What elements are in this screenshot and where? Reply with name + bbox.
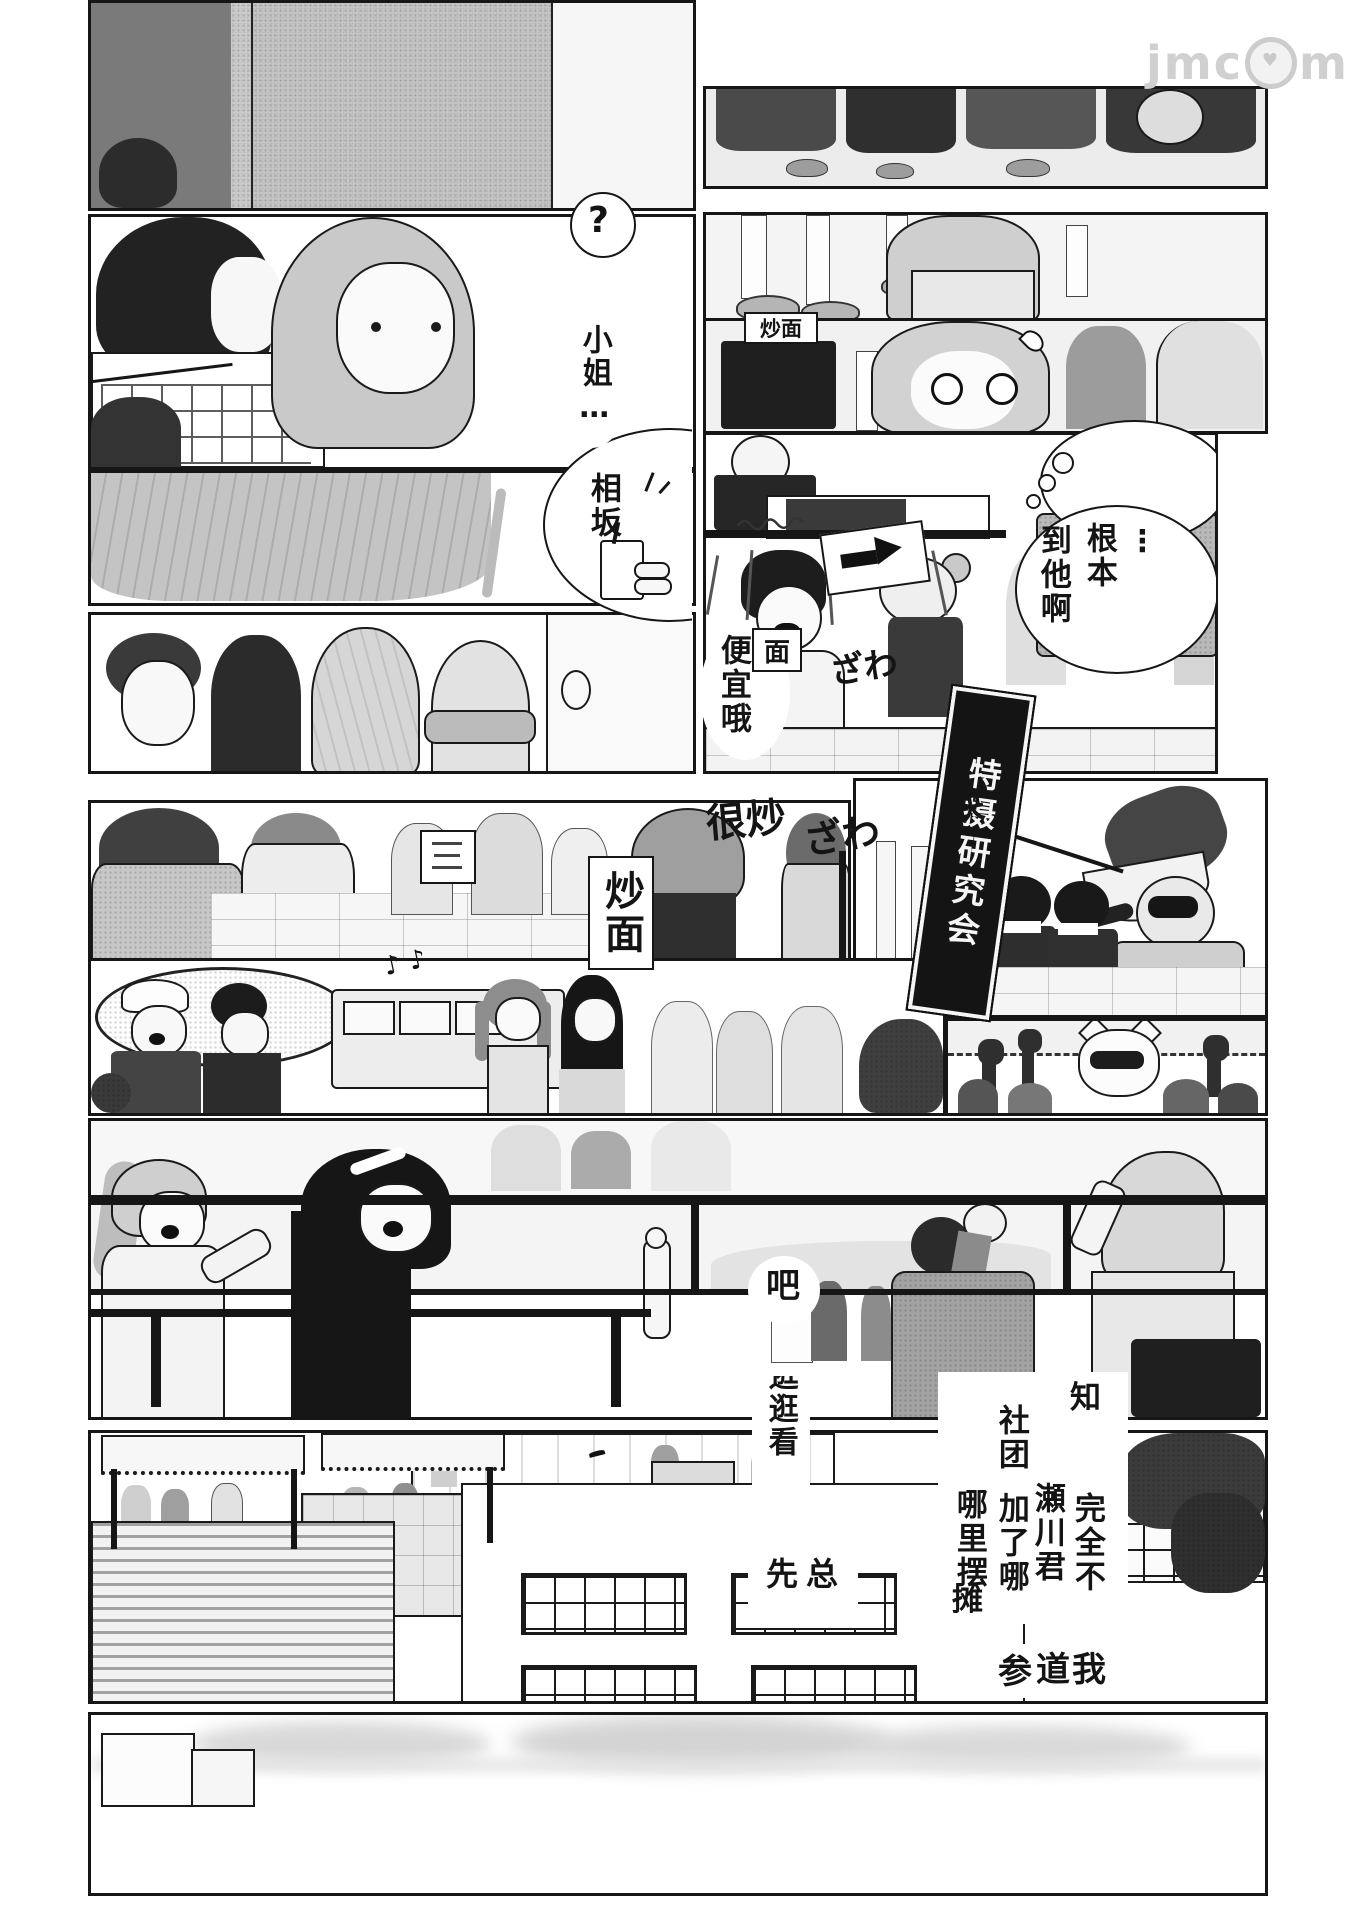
demo-leg-1: [876, 841, 896, 963]
tent-awning-1: [101, 1435, 305, 1475]
panel-cap-guys: [88, 958, 946, 1116]
girl-eye-right: [431, 322, 441, 332]
window-cluster-1: [521, 1573, 687, 1635]
shocked-eye-left: [931, 373, 963, 405]
sfx-henchao: 很炒: [704, 797, 787, 846]
sfx-zawa-1: ざわ: [828, 645, 900, 690]
friend-face: [221, 1011, 269, 1057]
figure-dark-bottom: [91, 397, 181, 467]
shoe-3: [1006, 159, 1050, 177]
yakisoba-stall-sign: 炒面: [588, 856, 654, 970]
arrow-head-icon: [874, 533, 904, 564]
girl1-face: [121, 660, 195, 746]
panel-girls-row: [88, 612, 696, 774]
tent1-post-left: [111, 1469, 117, 1549]
window-sill: [91, 1289, 1265, 1295]
c4-crowd-1: [651, 1001, 713, 1115]
panel-crowd-backs: [703, 86, 1268, 189]
window-cluster-4: [751, 1665, 917, 1704]
shoe-1: [786, 159, 828, 177]
zong-text: 总: [806, 1558, 838, 1592]
shetuan-text: 社团: [994, 1404, 1027, 1472]
small-building-1: [101, 1733, 195, 1807]
yakisoba-sign-small-text: 炒面: [760, 313, 802, 343]
thought-circle-1: [1052, 452, 1074, 474]
r3-bgfig-1: [491, 1125, 561, 1191]
r3-bgfig-2: [571, 1131, 631, 1189]
figure-head-dark: [99, 138, 177, 208]
crowd-figure-1: [716, 89, 836, 151]
thought-circle-3: [1026, 494, 1041, 509]
bush-right: [859, 1019, 943, 1113]
twin-girl-face: [495, 997, 541, 1041]
friend-body: [203, 1053, 281, 1113]
aisaka-text: 相坂: [586, 472, 619, 540]
robot-visor: [1148, 896, 1198, 918]
speedline-1: [706, 555, 719, 615]
small-building-2: [191, 1749, 255, 1807]
shocked-eye-right: [986, 373, 1018, 405]
wanquanbu-text: 完全不: [1070, 1492, 1103, 1594]
crowd-figure-2: [846, 89, 956, 153]
genben-text: 根本: [1082, 522, 1115, 590]
crowd-figure-3: [966, 89, 1096, 149]
tan-text: 摊: [952, 1584, 983, 1617]
bg-figure-1: [1066, 326, 1146, 429]
panel-feet-pavement: [703, 212, 1268, 322]
sfx-kuai: 快: [947, 787, 987, 828]
shoe-2: [876, 163, 914, 179]
dao-text: 道: [1036, 1652, 1070, 1688]
figure-white-shirt: [551, 3, 695, 208]
black-girl-body: [559, 1069, 625, 1113]
watermark-text-pre: jmc: [1146, 36, 1243, 90]
xian-text: 先: [766, 1558, 798, 1592]
r3-bgfig-3: [651, 1121, 731, 1191]
bush-left: [91, 1073, 131, 1113]
crowd-light-head: [1136, 89, 1204, 145]
black-girl-face: [573, 997, 617, 1043]
mascot-crowd-1: [958, 1079, 998, 1113]
guang-text: 逛逛看: [764, 1376, 796, 1459]
leg-4: [1066, 225, 1088, 297]
guang-bubble: 逛逛看: [752, 1376, 810, 1496]
bench-leg-1: [151, 1317, 161, 1407]
panel-sky: [88, 1712, 1268, 1896]
cap-guy-mouth: [149, 1033, 165, 1045]
cap-guy-face: [131, 1005, 187, 1057]
window-mullion-1: [691, 1195, 699, 1291]
building-roof-line: [88, 363, 233, 384]
arrow-bar-icon: [840, 550, 878, 569]
tent1-post-right: [291, 1469, 297, 1549]
window-cluster-3: [521, 1665, 697, 1704]
tent2-post: [487, 1467, 493, 1543]
talk-girl1-mouth: [161, 1225, 179, 1239]
window-mullion-2: [1063, 1195, 1071, 1291]
zhi-text: 知: [1070, 1382, 1101, 1415]
fist-2: [1018, 1029, 1042, 1053]
ba-text: 吧: [766, 1268, 800, 1304]
bench-leg-2: [391, 1317, 401, 1407]
girl2-hair: [211, 635, 301, 771]
mian-sign: 面: [752, 628, 802, 672]
leg-1: [741, 215, 767, 299]
talk-girl2-mouth: [383, 1221, 403, 1237]
foreground-case: [1131, 1339, 1261, 1417]
yakisoba-sign-small: 炒面: [744, 312, 818, 344]
twin-girl-body: [487, 1045, 549, 1116]
talk-girl2-face: [359, 1183, 433, 1253]
walker-2: [861, 1286, 891, 1361]
manga-page: jmc♥mic: [0, 0, 1350, 1920]
right-girl-hair: [1101, 1151, 1225, 1285]
miss-text: 小姐…: [578, 324, 610, 428]
thought-circle-2: [1038, 474, 1056, 492]
club-banner-text: 特摄研究会: [934, 753, 1009, 953]
question-text: ?: [588, 202, 609, 240]
hand-finger-1: [634, 562, 670, 579]
trees-right-2: [1171, 1493, 1265, 1593]
cheap-text: 便宜哦: [716, 634, 749, 736]
watermark: jmc♥mic: [1146, 36, 1350, 90]
window-rail: [91, 1195, 1265, 1205]
c4-crowd-3: [781, 1006, 843, 1115]
girl4-scarf: [424, 710, 536, 744]
girl4-head: [431, 640, 530, 774]
daotaa-text: 到他啊: [1036, 524, 1069, 626]
pointing-finger: [645, 1227, 667, 1249]
leg-2: [806, 215, 830, 305]
ellipsis-text: ⋮: [1126, 524, 1158, 562]
hand-finger-2: [634, 578, 672, 595]
girl-eye-left: [371, 322, 381, 332]
cloud-streak: [91, 1759, 1265, 1771]
bg-figure-2: [1156, 321, 1263, 429]
mascot-crowd-2: [1008, 1083, 1052, 1113]
camera-girl2-collar: [1058, 923, 1098, 935]
watermark-bird-icon: ♥: [1245, 37, 1297, 89]
panel-mascot: [945, 1018, 1268, 1116]
mascot-crowd-4: [1218, 1083, 1258, 1113]
cat-robot-visor: [1090, 1051, 1144, 1069]
sfx-zawa-2: ざわ: [802, 811, 883, 861]
figure-sweater-person: [251, 3, 555, 208]
bench-leg-3: [611, 1317, 621, 1407]
bus-window-1: [343, 1001, 395, 1035]
yakisoba-sign-text: 炒面: [592, 870, 650, 956]
sfx-squiggle-icon: [736, 512, 807, 534]
wo-text: 我: [1072, 1652, 1106, 1688]
sign-mark-2: [434, 854, 460, 857]
mascot-crowd-3: [1163, 1079, 1209, 1113]
girl3-braids: [311, 627, 420, 774]
bus-window-2: [399, 1001, 451, 1035]
foreground-ear: [561, 670, 591, 710]
plaza-bg-fig2: [471, 813, 543, 915]
jialena-text: 加了哪: [994, 1492, 1027, 1594]
louver-building: [91, 1521, 395, 1704]
bench-top: [91, 1309, 651, 1317]
girl-hair-mass: [91, 473, 491, 601]
sign-mark-1: [432, 842, 462, 845]
can-text: 参: [998, 1654, 1032, 1690]
sign-mark-3: [432, 866, 462, 869]
watermark-text-post: mic: [1299, 36, 1350, 90]
c4-crowd-2: [716, 1011, 773, 1115]
zongxian-bubble: [748, 1548, 858, 1628]
rooftop-unit: [651, 1461, 735, 1485]
apron-skirt: [721, 341, 836, 429]
walking-girl-jacket: [911, 270, 1035, 322]
panel-crowd-noise: [88, 0, 696, 211]
watermark-heart-icon: ♥: [1262, 50, 1280, 71]
segawa-text: 瀬川君: [1030, 1482, 1063, 1584]
mian-sign-text: 面: [764, 632, 790, 669]
small-sign: [420, 830, 476, 884]
nalibai-text: 哪里摆: [952, 1488, 985, 1590]
tent-awning-2: [321, 1433, 505, 1471]
